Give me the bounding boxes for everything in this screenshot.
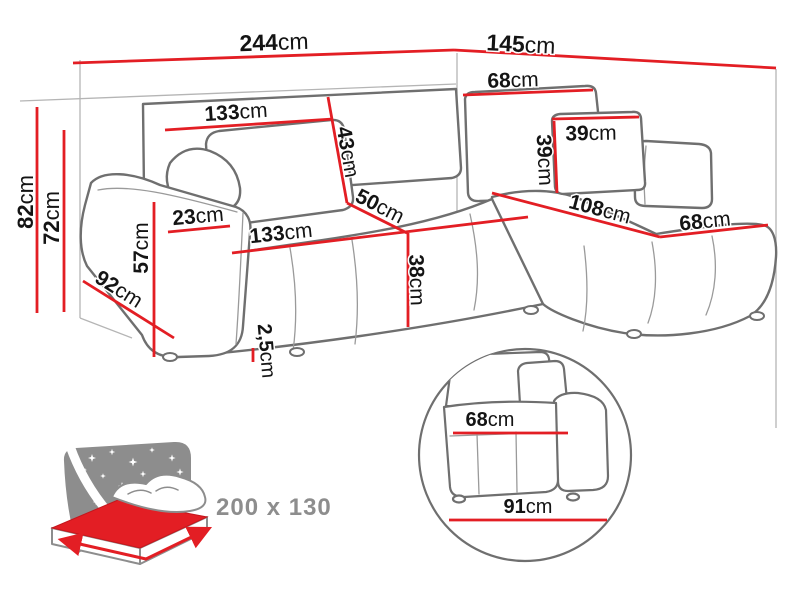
dimension-label-width-total: 244cm [239,28,309,56]
sofa-foot [163,353,177,361]
dimension-label-backrest-width: 133cm [204,98,268,125]
sofa-dimension-diagram: 244cm145cm82cm72cm133cm68cm43cm50cm23cm1… [0,0,800,600]
bed-size-label: 200 x 130 [216,494,332,521]
dimension-label-armrest-height: 57cm [130,222,153,273]
dimension-label-seat-height: 38cm [405,254,430,306]
detail-foot [567,494,579,501]
sofa-foot [290,348,304,356]
sofa-foot [524,306,538,314]
dimension-label-height-total: 82cm [13,175,38,229]
detail-armrest [554,393,608,491]
dimension-label-detail-seat-width: 68cm [466,409,515,431]
dimension-label-seat-depth: 50cm [352,184,408,228]
dimension-label-backrest-right-width: 68cm [487,68,539,93]
detail-circle [419,349,631,561]
sofa-bed-icon [52,442,208,564]
detail-foot [453,496,465,503]
dimension-line-pillow-width [552,117,639,119]
dimension-label-height-backrest: 72cm [39,191,64,245]
dimension-label-depth-total: 145cm [486,29,556,59]
dimension-label-leg-height: 2,5cm [253,323,280,379]
dimension-label-detail-base-width: 91cm [504,496,553,518]
dimension-label-pillow-width: 39cm [565,121,617,145]
floor-corner-line [80,318,132,338]
sofa-foot [627,330,641,338]
dimension-label-pillow-height: 39cm [532,134,558,186]
dimension-label-armrest-width: 23cm [171,202,224,229]
sofa-foot [750,312,764,320]
diagram-canvas: 244cm145cm82cm72cm133cm68cm43cm50cm23cm1… [0,0,800,600]
